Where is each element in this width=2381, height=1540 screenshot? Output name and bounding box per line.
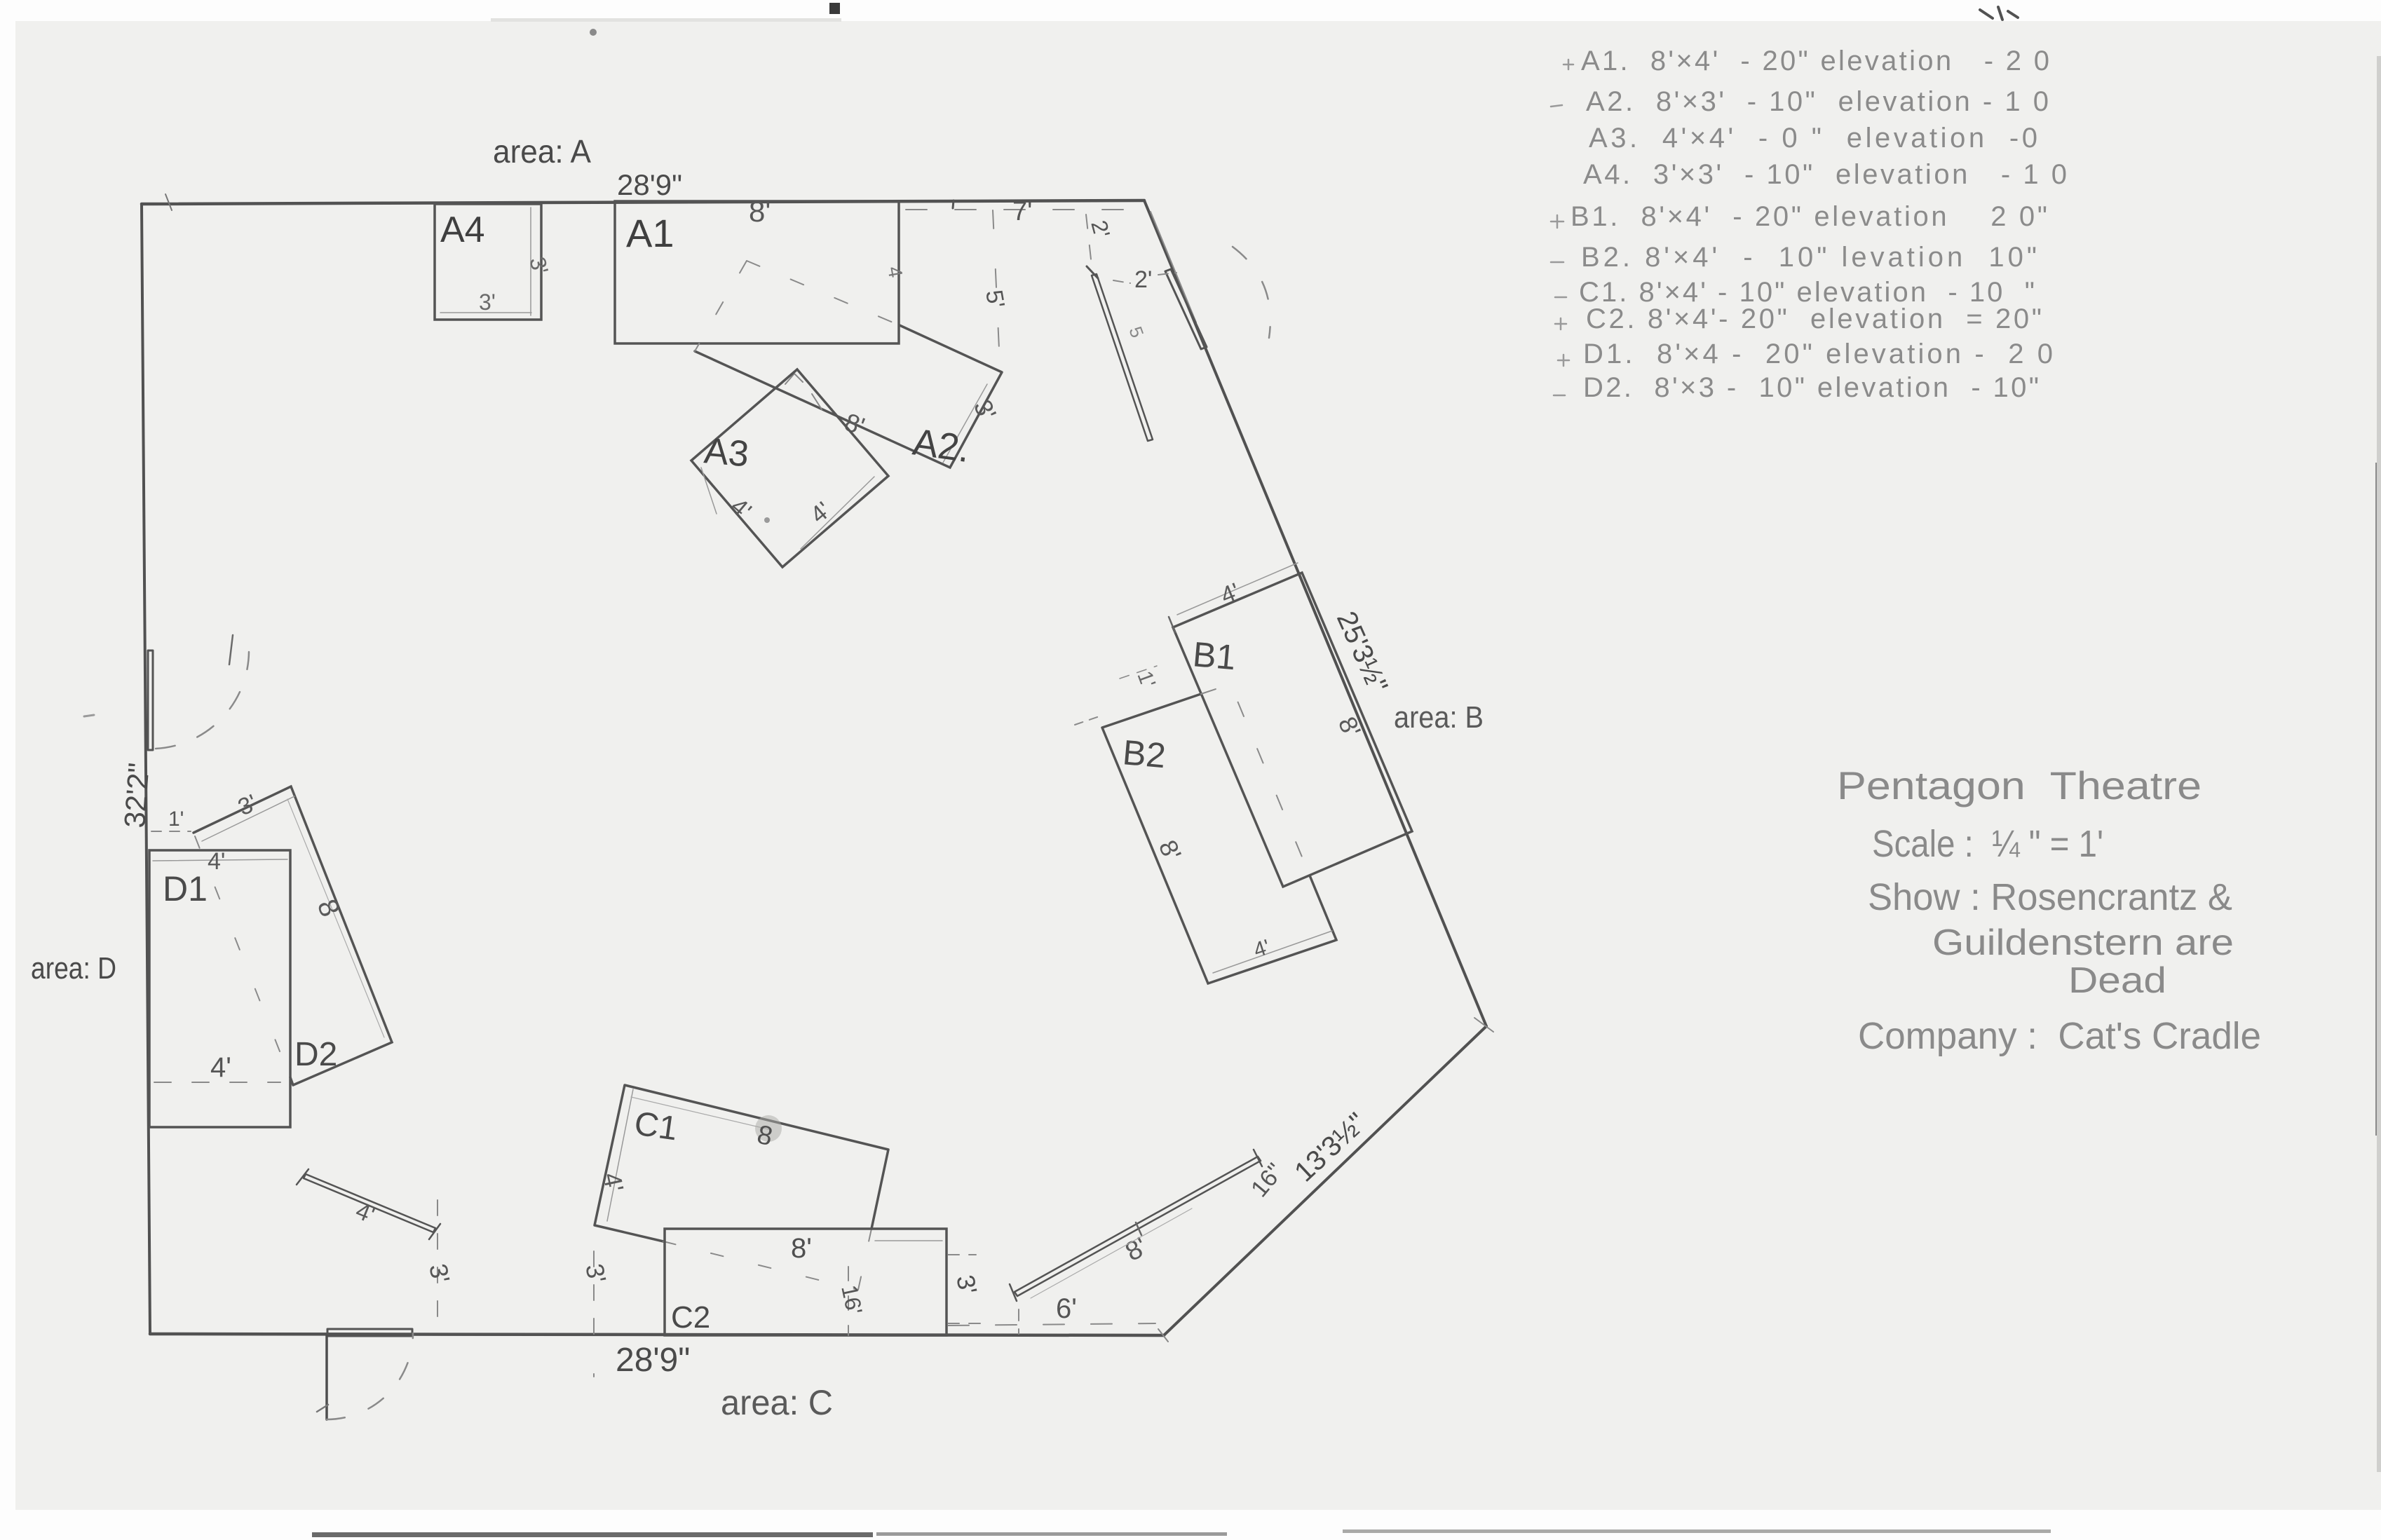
svg-text:28'9": 28'9" <box>616 1342 690 1379</box>
svg-text:1': 1' <box>168 808 184 831</box>
svg-text:3': 3' <box>479 289 496 315</box>
svg-text:Pentagon Theatre: Pentagon Theatre <box>1837 763 2202 808</box>
svg-text:Guildenstern are: Guildenstern are <box>1932 922 2234 963</box>
svg-text:28'9": 28'9" <box>617 168 682 201</box>
svg-text:B1. 8'×4' - 20" elevation: B1. 8'×4' - 20" elevation 2 0" <box>1571 201 2047 232</box>
svg-text:A4: A4 <box>440 210 485 250</box>
svg-text:A2.: A2. <box>910 421 972 470</box>
svg-text:8': 8' <box>791 1233 812 1264</box>
svg-text:area: D: area: D <box>31 951 116 986</box>
svg-text:Company : Cat's Cradle: Company : Cat's Cradle <box>1858 1015 2261 1057</box>
svg-text:2': 2' <box>1134 266 1152 293</box>
svg-text:4': 4' <box>210 1052 231 1083</box>
svg-text:B2: B2 <box>1121 732 1167 775</box>
svg-text:C1: C1 <box>632 1105 679 1147</box>
svg-text:C2: C2 <box>671 1300 710 1335</box>
svg-text:32'2": 32'2" <box>118 762 155 829</box>
svg-text:A3. 4'×4' - 0 " elevation: A3. 4'×4' - 0 " elevation -0 <box>1589 123 2037 154</box>
svg-text:6': 6' <box>1056 1293 1077 1324</box>
svg-text:A3: A3 <box>703 430 750 475</box>
svg-text:C2. 8'×4'- 20" elevation = 2: C2. 8'×4'- 20" elevation = 20" <box>1586 304 2042 334</box>
svg-text:A1. 8'×4' - 20" elevation: A1. 8'×4' - 20" elevation - 2 0 <box>1581 46 2049 76</box>
svg-text:D1. 8'×4 - 20" elevation -: D1. 8'×4 - 20" elevation - 2 0 <box>1583 339 2053 369</box>
svg-text:A2. 8'×3' - 10" elevation -: A2. 8'×3' - 10" elevation - 1 0 <box>1586 86 2049 117</box>
svg-text:8': 8' <box>749 195 771 228</box>
svg-text:Scale : ¼ " = 1': Scale : ¼ " = 1' <box>1872 823 2103 865</box>
svg-text:A1: A1 <box>626 211 674 255</box>
svg-text:B1: B1 <box>1191 634 1237 677</box>
svg-text:D1: D1 <box>163 869 208 908</box>
svg-text:7': 7' <box>1012 197 1032 226</box>
svg-text:Dead: Dead <box>2068 960 2166 1001</box>
svg-text:Show : Rosencrantz &: Show : Rosencrantz & <box>1868 876 2232 918</box>
svg-text:D2. 8'×3 - 10" elevation -: D2. 8'×3 - 10" elevation - 10" <box>1583 372 2039 403</box>
svg-text:B2. 8'×4' - 10" levation 10: B2. 8'×4' - 10" levation 10" <box>1581 242 2037 273</box>
svg-text:area: C: area: C <box>721 1383 833 1422</box>
svg-text:area: B: area: B <box>1394 700 1484 735</box>
svg-text:area: A: area: A <box>493 133 591 170</box>
svg-text:D2: D2 <box>294 1036 337 1073</box>
svg-text:A4. 3'×3' - 10" elevation: A4. 3'×3' - 10" elevation - 1 0 <box>1583 159 2067 190</box>
svg-text:4': 4' <box>208 848 225 875</box>
